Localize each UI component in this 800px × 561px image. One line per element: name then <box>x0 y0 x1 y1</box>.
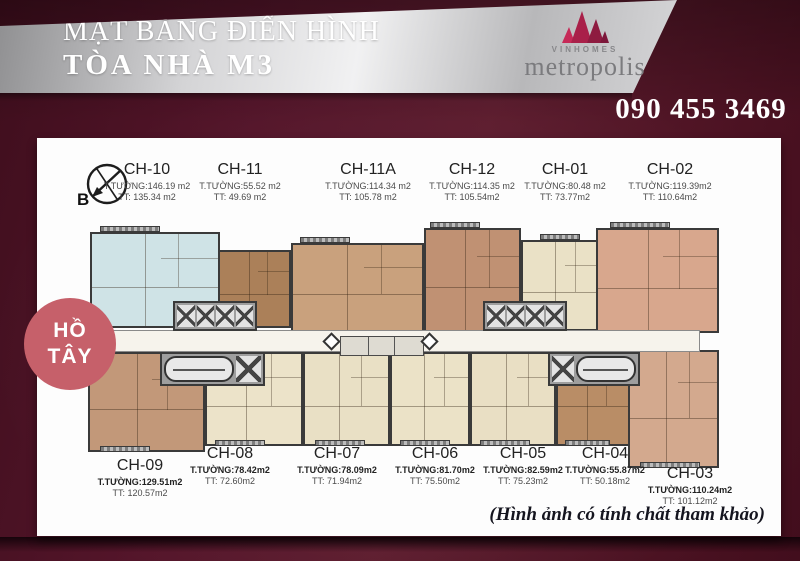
staircase-icon <box>164 356 234 382</box>
balcony <box>300 237 350 243</box>
page-title-line1: MẶT BẰNG ĐIỂN HÌNH <box>63 16 380 48</box>
lake-label-line1: HỒ <box>24 318 116 344</box>
floorplan-unit-CH-02 <box>596 228 719 333</box>
unit-wall-area: T.TƯỜNG:78.42m2 <box>168 465 292 476</box>
floorplan-unit-CH-05 <box>470 352 556 446</box>
unit-wall-area: T.TƯỜNG:119.39m2 <box>608 181 732 192</box>
page: MẶT BẰNG ĐIỂN HÌNH TÒA NHÀ M3 VINHOMES m… <box>0 0 800 561</box>
unit-id: CH-03 <box>628 464 752 483</box>
stair-core-right <box>548 352 640 386</box>
phone-number: 090 455 3469 <box>606 93 796 126</box>
balcony <box>100 226 160 232</box>
floorplan-unit-CH-11A <box>291 243 424 332</box>
logo-zigzag-m-icon <box>560 8 610 44</box>
elevator-shaft-icon <box>552 356 574 382</box>
elevator-shaft-icon <box>236 356 261 382</box>
unit-label-CH-08: CH-08 T.TƯỜNG:78.42m2 TT: 72.60m2 <box>168 444 292 487</box>
floorplan-unit-CH-06 <box>390 352 470 446</box>
vinhomes-metropolis-logo: VINHOMES metropolis <box>520 8 650 80</box>
unit-net-area: TT: 72.60m2 <box>168 476 292 487</box>
page-title-line2: TÒA NHÀ M3 <box>63 49 275 82</box>
balcony <box>540 234 580 240</box>
unit-net-area: TT: 110.64m2 <box>608 192 732 203</box>
unit-label-CH-02: CH-02 T.TƯỜNG:119.39m2 TT: 110.64m2 <box>608 160 732 203</box>
card-shadow <box>0 537 800 552</box>
banner-shadow <box>0 93 632 101</box>
stair-core-left <box>160 352 265 386</box>
unit-id: CH-08 <box>168 444 292 463</box>
elevator-shaft-icon <box>487 305 505 327</box>
floorplan-unit-CH-07 <box>303 352 390 446</box>
unit-id: CH-11 <box>178 160 302 179</box>
balcony <box>610 222 670 228</box>
west-lake-badge: HỒ TÂY <box>24 298 116 390</box>
unit-wall-area: T.TƯỜNG:110.24m2 <box>628 485 752 496</box>
elevator-core-right <box>483 301 567 331</box>
disclaimer-text: (Hình ảnh có tính chất tham khảo) <box>489 504 765 526</box>
service-rooms-block <box>340 336 424 356</box>
unit-net-area: TT: 120.57m2 <box>78 488 202 499</box>
unit-net-area: TT: 49.69 m2 <box>178 192 302 203</box>
elevator-shaft-icon <box>197 305 215 327</box>
elevator-shaft-icon <box>546 305 564 327</box>
balcony <box>100 446 150 452</box>
elevator-shaft-icon <box>216 305 234 327</box>
floorplan-card: B CH-10 T.TƯỜNG:146.19 m2 TT: 135.34 m2 … <box>37 138 781 536</box>
unit-id: CH-02 <box>608 160 732 179</box>
elevator-shaft-icon <box>526 305 544 327</box>
unit-label-CH-03: CH-03 T.TƯỜNG:110.24m2 TT: 101.12m2 <box>628 464 752 507</box>
unit-label-CH-11: CH-11 T.TƯỜNG:55.52 m2 TT: 49.69 m2 <box>178 160 302 203</box>
unit-wall-area: T.TƯỜNG:55.52 m2 <box>178 181 302 192</box>
lake-label-line2: TÂY <box>24 344 116 370</box>
balcony <box>430 222 480 228</box>
staircase-icon <box>576 356 636 382</box>
elevator-shaft-icon <box>236 305 254 327</box>
logo-name-text: metropolis <box>520 54 650 80</box>
elevator-shaft-icon <box>177 305 195 327</box>
elevator-core-left <box>173 301 257 331</box>
elevator-shaft-icon <box>507 305 525 327</box>
unit-id: CH-04 <box>543 444 667 463</box>
